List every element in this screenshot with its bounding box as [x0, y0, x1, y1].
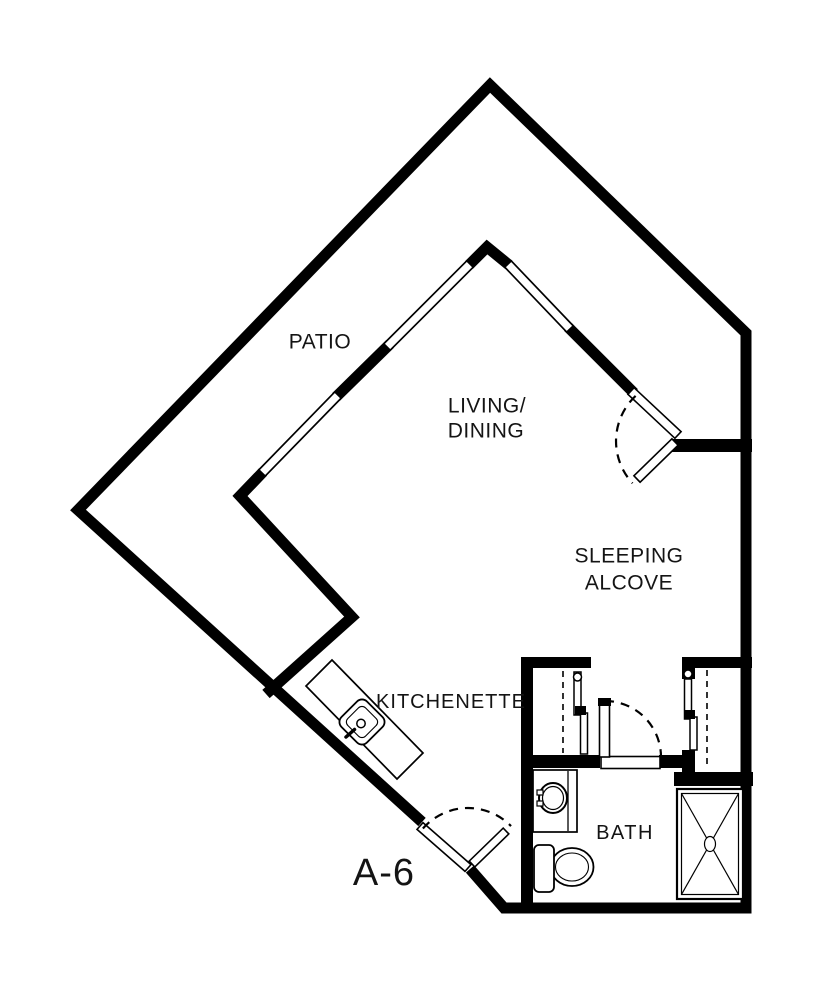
bath-door-threshold — [601, 757, 660, 769]
hall-bottom-wall-left — [521, 755, 600, 768]
exterior-walls — [78, 85, 746, 908]
bath-door-leaf — [600, 701, 610, 757]
floor-plan-drawing — [0, 0, 822, 998]
label-sleeping-alcove-line2: ALCOVE — [585, 573, 673, 594]
patio-inner-walls — [240, 247, 634, 694]
left-closet-top-wall — [521, 657, 591, 668]
patio-wall-apex — [469, 247, 509, 265]
closet-door-panel — [581, 713, 588, 754]
bathroom-sink-icon — [533, 770, 577, 832]
closet-door-knob — [684, 670, 692, 678]
closet-door-overlap — [684, 710, 695, 719]
patio-window-icon — [384, 261, 473, 350]
door-swing-arc — [605, 701, 661, 757]
door-swing-arc — [616, 396, 636, 483]
label-patio: PATIO — [289, 332, 351, 353]
label-sleeping-alcove-line1: SLEEPING — [574, 546, 683, 567]
closet-door-knob — [574, 673, 582, 681]
label-kitchenette: KITCHENETTE — [376, 692, 526, 712]
patio-door-threshold — [628, 388, 681, 439]
entry-door-threshold — [417, 823, 471, 872]
shower-icon — [677, 789, 743, 899]
label-living-dining-line1: LIVING/ — [448, 396, 526, 417]
patio-window-icon — [505, 261, 574, 332]
patio-wall-ne-segment — [568, 327, 634, 393]
patio-wall-corner-and-jog — [240, 472, 352, 694]
entry-door-leaf — [469, 828, 509, 867]
patio-door-leaf — [634, 439, 678, 482]
right-closet-bottom-wall — [674, 772, 753, 786]
left-closet — [563, 671, 588, 754]
floor-plan: PATIO LIVING/ DINING SLEEPING ALCOVE KIT… — [0, 0, 822, 998]
label-living-dining-line2: DINING — [448, 421, 525, 442]
patio-door — [616, 388, 681, 484]
windows — [259, 261, 574, 476]
bath-door — [598, 698, 661, 769]
exterior-wall-outline — [78, 85, 746, 908]
toilet-icon — [534, 845, 594, 892]
unit-number-label: A-6 — [353, 854, 415, 892]
patio-door-side-wall — [672, 439, 752, 452]
patio-window-icon — [259, 392, 341, 476]
label-bath: BATH — [596, 823, 654, 843]
kitchenette-counter — [306, 660, 423, 779]
right-closet-jamb-bottom — [682, 750, 695, 773]
door-swing-arc — [423, 808, 511, 828]
entry-door — [417, 808, 511, 871]
closet-door-overlap — [575, 706, 586, 715]
closet-door-panel — [690, 717, 697, 750]
